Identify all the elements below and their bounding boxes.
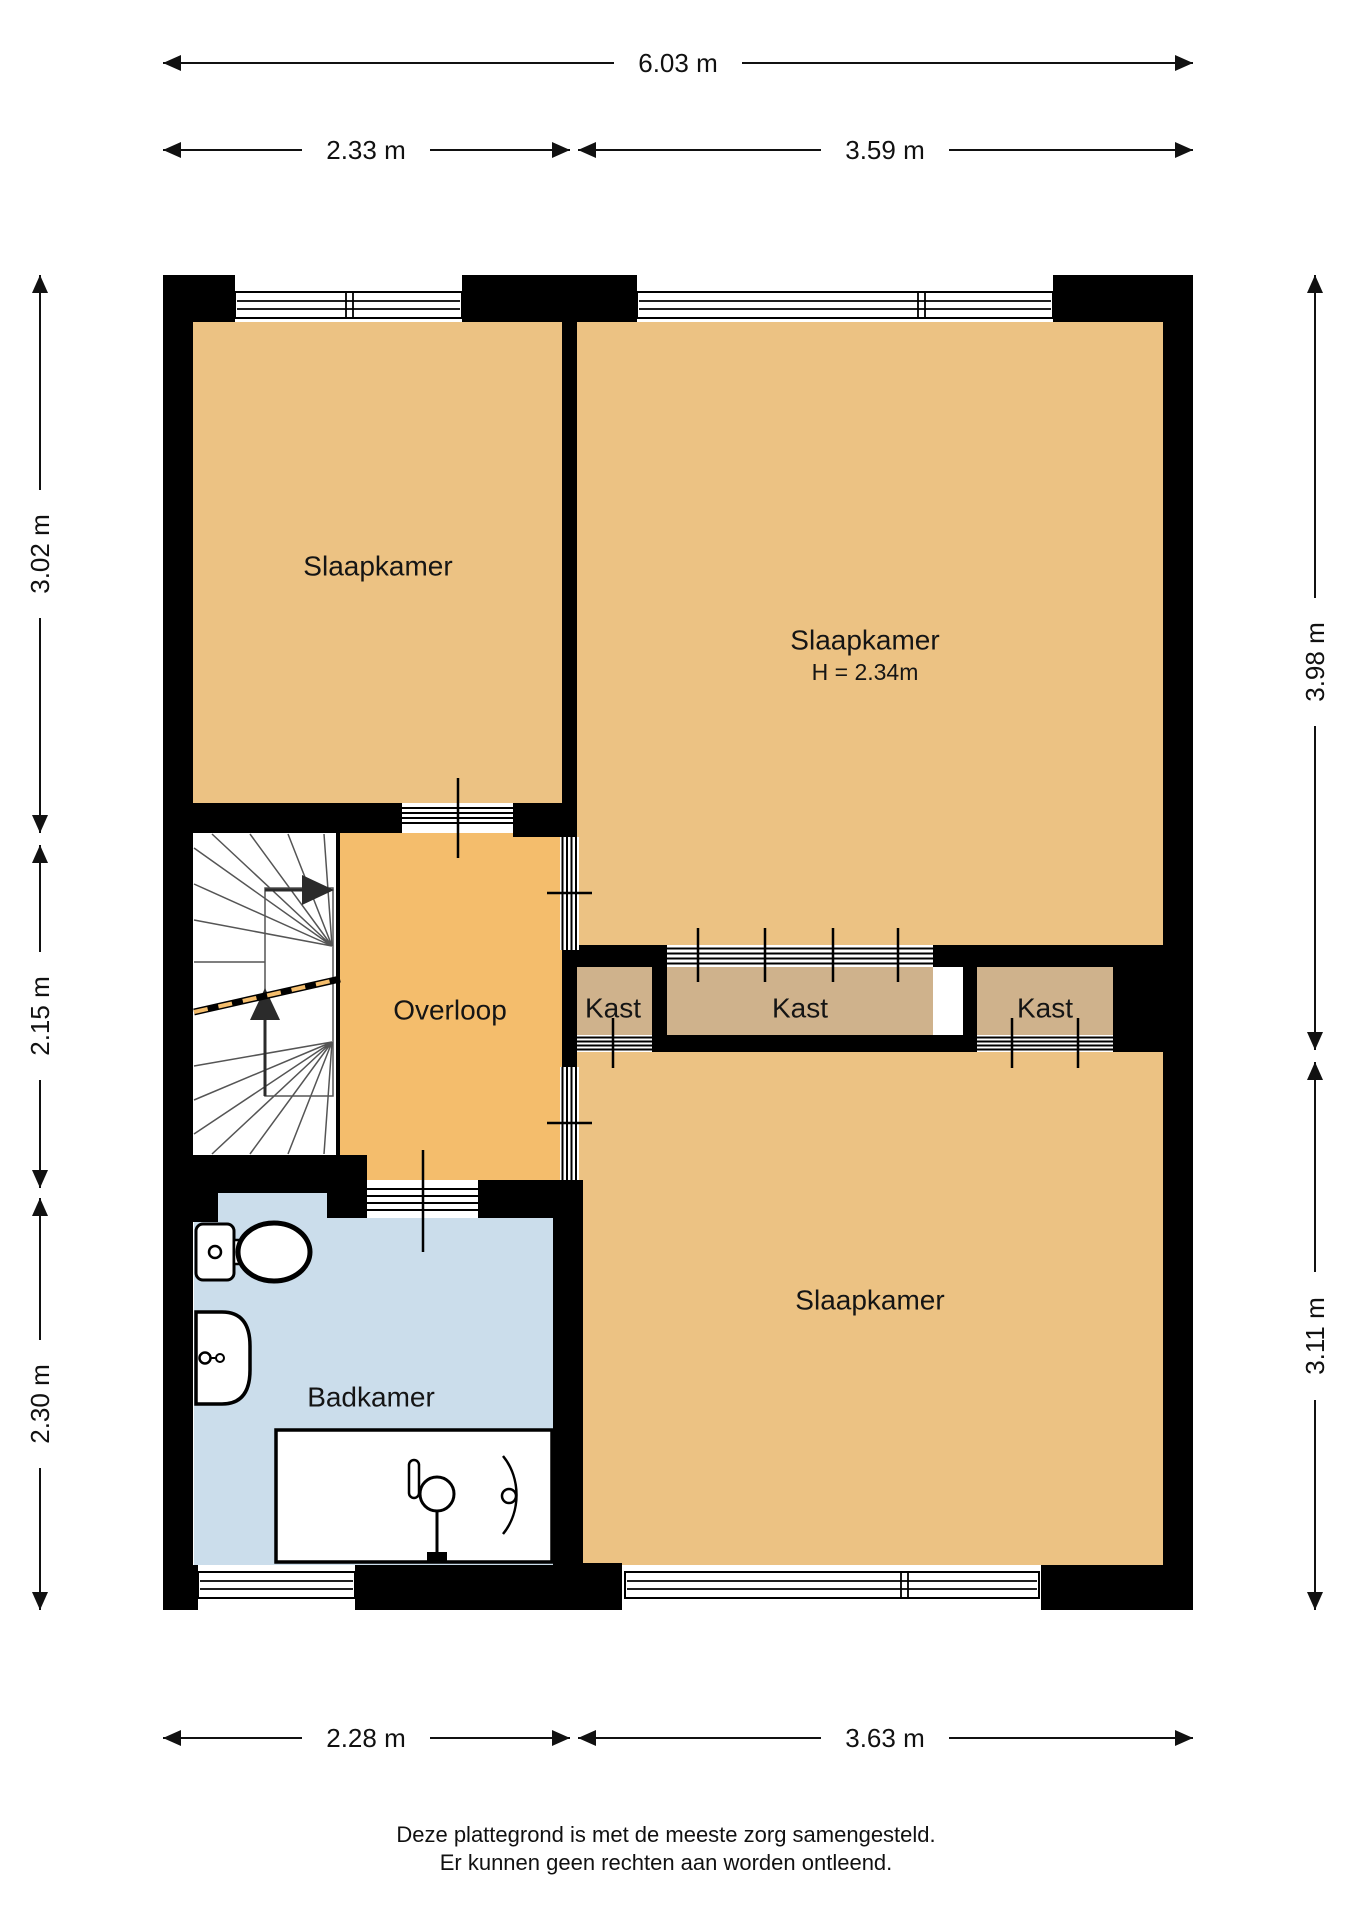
dimension-top-total-label: 6.03 m xyxy=(638,48,718,78)
dimension-bottom-right: 3.63 m xyxy=(578,1721,1193,1755)
dimension-left-bottom-label: 2.30 m xyxy=(25,1364,55,1444)
dimension-top-right-label: 3.59 m xyxy=(845,135,925,165)
dimension-right-bottom: 3.11 m xyxy=(1298,1062,1332,1610)
bathtub-icon xyxy=(276,1430,552,1562)
dimension-bottom-left: 2.28 m xyxy=(163,1721,570,1755)
wall-top-pier xyxy=(462,275,637,322)
dimension-top-left: 2.33 m xyxy=(163,133,570,167)
wall-divider-top-bedrooms xyxy=(562,322,577,803)
dimension-top-total: 6.03 m xyxy=(163,46,1193,80)
dimension-left-top-label: 3.02 m xyxy=(25,514,55,594)
floor-plan-page: Slaapkamer Slaapkamer H = 2.34m Overloop… xyxy=(0,0,1358,1920)
footer-disclaimer: Deze plattegrond is met de meeste zorg s… xyxy=(396,1822,935,1875)
label-closet-middle: Kast xyxy=(772,993,828,1024)
label-bedroom-bottom: Slaapkamer xyxy=(795,1285,944,1316)
sink-icon xyxy=(196,1312,250,1404)
wall-landing-bottom-b xyxy=(478,1180,583,1218)
wall-bottom-pier xyxy=(553,1563,622,1610)
dimension-left-middle-label: 2.15 m xyxy=(25,976,55,1056)
window-bathroom xyxy=(198,1572,355,1598)
window-bedroom-bottom xyxy=(625,1572,1039,1598)
footer-line-1: Deze plattegrond is met de meeste zorg s… xyxy=(396,1822,935,1847)
wall-under-bedroom-left-b xyxy=(513,803,577,837)
dimension-left-middle: 2.15 m xyxy=(23,845,57,1188)
footer-line-2: Er kunnen geen rechten aan worden ontlee… xyxy=(440,1850,893,1875)
wall-outer-right xyxy=(1163,275,1193,1610)
dimension-left-top: 3.02 m xyxy=(23,275,57,833)
label-landing: Overloop xyxy=(393,995,507,1026)
label-bedroom-top-left: Slaapkamer xyxy=(303,551,452,582)
label-ceiling-height: H = 2.34m xyxy=(812,659,919,685)
wall-top-corner-left xyxy=(163,275,235,322)
window-bedroom-top-left xyxy=(235,292,462,318)
wall-closet-right-pier xyxy=(1113,945,1163,1052)
wall-landing-east xyxy=(562,950,577,1067)
wall-closet-mid-west xyxy=(652,967,667,1035)
label-bathroom: Badkamer xyxy=(307,1382,435,1413)
dimension-right-bottom-label: 3.11 m xyxy=(1300,1297,1330,1375)
label-closet-right: Kast xyxy=(1017,993,1073,1024)
dimension-top-right: 3.59 m xyxy=(578,133,1193,167)
wall-outer-left xyxy=(163,275,193,1610)
dimension-bottom-left-label: 2.28 m xyxy=(326,1723,406,1753)
wall-closet-top-right xyxy=(933,945,1113,967)
wall-bottom-bathroom xyxy=(355,1565,553,1610)
wall-under-bedroom-left-a xyxy=(193,803,402,833)
wall-stairs-bottom xyxy=(163,1155,367,1193)
dimension-right-top-label: 3.98 m xyxy=(1300,622,1330,702)
label-bedroom-top-right: Slaapkamer xyxy=(790,625,939,656)
wall-top-corner-right xyxy=(1053,275,1163,322)
wall-closet-mid-east xyxy=(963,967,977,1035)
dimension-right-top: 3.98 m xyxy=(1298,275,1332,1050)
wall-bathroom-stub-mid xyxy=(327,1193,367,1218)
dimension-top-left-label: 2.33 m xyxy=(326,135,406,165)
wall-closet-bottom xyxy=(652,1035,977,1052)
wall-bathroom-east xyxy=(553,1218,583,1565)
wall-bathroom-stub-left xyxy=(193,1193,218,1222)
dimension-left-bottom: 2.30 m xyxy=(23,1198,57,1610)
wall-bottom-corner-right xyxy=(1041,1565,1193,1610)
dimension-bottom-right-label: 3.63 m xyxy=(845,1723,925,1753)
label-closet-left: Kast xyxy=(585,993,641,1024)
wall-bottom-corner-left xyxy=(163,1565,198,1610)
floor-plan: Slaapkamer Slaapkamer H = 2.34m Overloop… xyxy=(0,0,1358,1920)
toilet-icon xyxy=(196,1223,310,1281)
window-bedroom-top-right xyxy=(637,292,1053,318)
